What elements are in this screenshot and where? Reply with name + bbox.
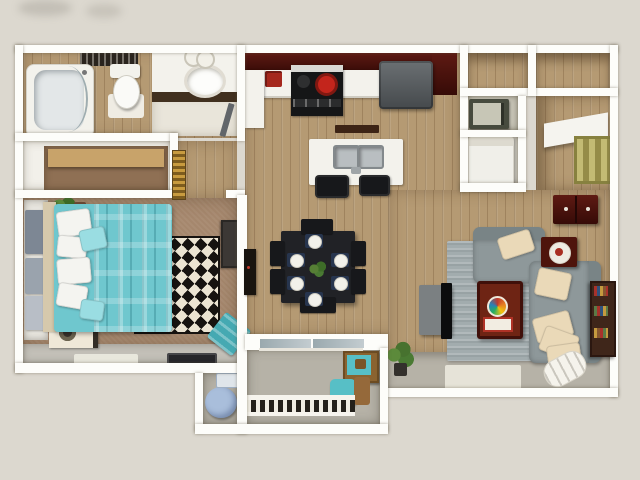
microwave-door	[473, 103, 504, 125]
background-shadow	[18, 0, 72, 16]
cabinet-knob	[586, 207, 590, 211]
dining-wall-tv-light	[247, 266, 250, 269]
balcony-railing-bottom	[247, 412, 355, 416]
table-centerpiece-plant	[308, 261, 328, 277]
stove-controls	[293, 99, 341, 107]
plate	[334, 254, 348, 268]
bar-stool	[315, 175, 349, 198]
place-setting	[305, 292, 323, 306]
plate	[290, 254, 304, 268]
shower-head	[82, 70, 87, 75]
wall-entry-closets	[460, 88, 618, 96]
vanity-sink	[184, 64, 226, 98]
place-setting	[331, 276, 349, 290]
living-room-plant-pot	[394, 363, 407, 376]
board-game-wheel	[487, 296, 508, 317]
place-setting	[331, 253, 349, 267]
storage-beanbag	[205, 387, 237, 418]
linen-closet-shelf	[48, 149, 164, 167]
books	[594, 328, 608, 338]
plate	[308, 235, 322, 249]
wall-closet-divider	[528, 45, 536, 96]
plate	[334, 277, 348, 291]
dining-chair	[270, 269, 285, 294]
hanging-clothes	[25, 258, 45, 294]
closet-b-floor	[536, 53, 610, 90]
wall-kitchen-entry	[460, 45, 468, 192]
dining-chair	[351, 269, 366, 294]
books	[594, 306, 608, 316]
toilet-bowl	[113, 75, 140, 109]
dining-chair	[270, 241, 285, 266]
balcony-art-detail	[355, 359, 366, 369]
tv-screen	[441, 283, 452, 339]
sliding-door-threshold	[259, 348, 363, 351]
pendant-light-bar	[335, 125, 379, 133]
stove-burner-dark	[297, 75, 310, 88]
bar-stool	[359, 175, 390, 196]
place-setting	[287, 253, 305, 267]
living-room-floor-mat	[445, 365, 521, 390]
kitchen-counter-left	[245, 70, 264, 128]
wall-bedroom-bottom	[15, 363, 245, 373]
hanging-clothes	[25, 296, 45, 330]
plate	[308, 293, 322, 307]
island-sink-left	[333, 145, 360, 169]
island-sink-right	[357, 145, 384, 169]
wall-living-bottom	[386, 388, 618, 397]
plate	[290, 277, 304, 291]
closet-a-floor	[468, 53, 528, 90]
cabinet-knob	[564, 207, 568, 211]
gold-wall-art	[172, 150, 186, 200]
bed-duvet	[94, 204, 172, 332]
entry-wall-cabinet-divider	[575, 196, 577, 223]
wall-bedroom-right	[237, 195, 247, 434]
wall-niche-entry	[518, 96, 526, 188]
wall-niche-divider	[460, 130, 526, 137]
bed-accent-pillow	[79, 298, 106, 321]
dining-chair	[301, 219, 333, 234]
wall-outer-left	[15, 45, 23, 373]
stove-burner-red	[315, 73, 338, 96]
decorative-bowl-center	[555, 248, 563, 256]
wall-balcony-slab	[195, 424, 388, 434]
background-shadow	[86, 4, 122, 18]
dining-chair	[351, 241, 366, 266]
hanging-clothes	[25, 210, 45, 254]
wall-entry-bottom	[460, 183, 526, 192]
kitchen-cabinet-return	[432, 53, 457, 95]
balcony-chair-arm	[354, 377, 370, 405]
shower-glass-door	[48, 66, 88, 132]
place-setting	[305, 234, 323, 248]
place-setting	[287, 276, 305, 290]
board-game-box	[483, 317, 513, 332]
wall-bathroom-closet	[15, 133, 178, 141]
dining-wall-tv	[244, 249, 256, 295]
refrigerator	[379, 61, 433, 109]
books	[594, 286, 608, 296]
wall-balcony-right	[380, 348, 388, 432]
balcony-railing-balusters	[247, 400, 355, 412]
wall-bedroom-top	[15, 190, 178, 198]
wall-bath-kitchen	[237, 45, 245, 141]
island-faucet	[351, 167, 361, 174]
floorplan-canvas	[0, 0, 640, 480]
red-small-appliance	[265, 71, 282, 87]
